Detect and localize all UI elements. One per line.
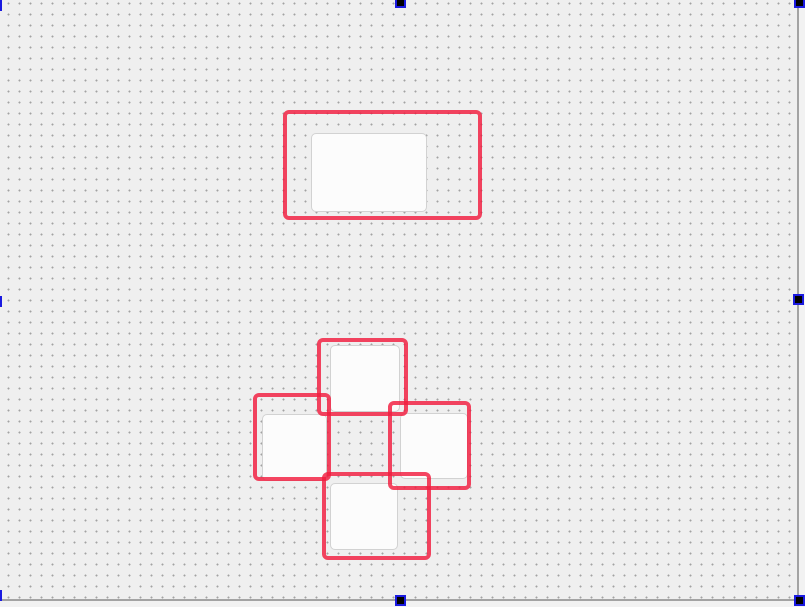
diagram-editor-viewport <box>0 0 805 607</box>
handle-bottom-left[interactable] <box>0 590 2 601</box>
highlight-cluster-bottom[interactable] <box>322 472 431 560</box>
handle-top-right[interactable] <box>794 0 805 8</box>
highlight-cluster-left[interactable] <box>253 393 331 481</box>
handle-top-left[interactable] <box>0 0 2 11</box>
handle-bottom-center[interactable] <box>395 595 406 606</box>
handle-middle-right[interactable] <box>793 294 804 305</box>
handle-top-center[interactable] <box>395 0 406 8</box>
highlight-top-large[interactable] <box>283 110 482 220</box>
handle-bottom-right[interactable] <box>794 595 805 606</box>
handle-middle-left[interactable] <box>0 296 2 307</box>
